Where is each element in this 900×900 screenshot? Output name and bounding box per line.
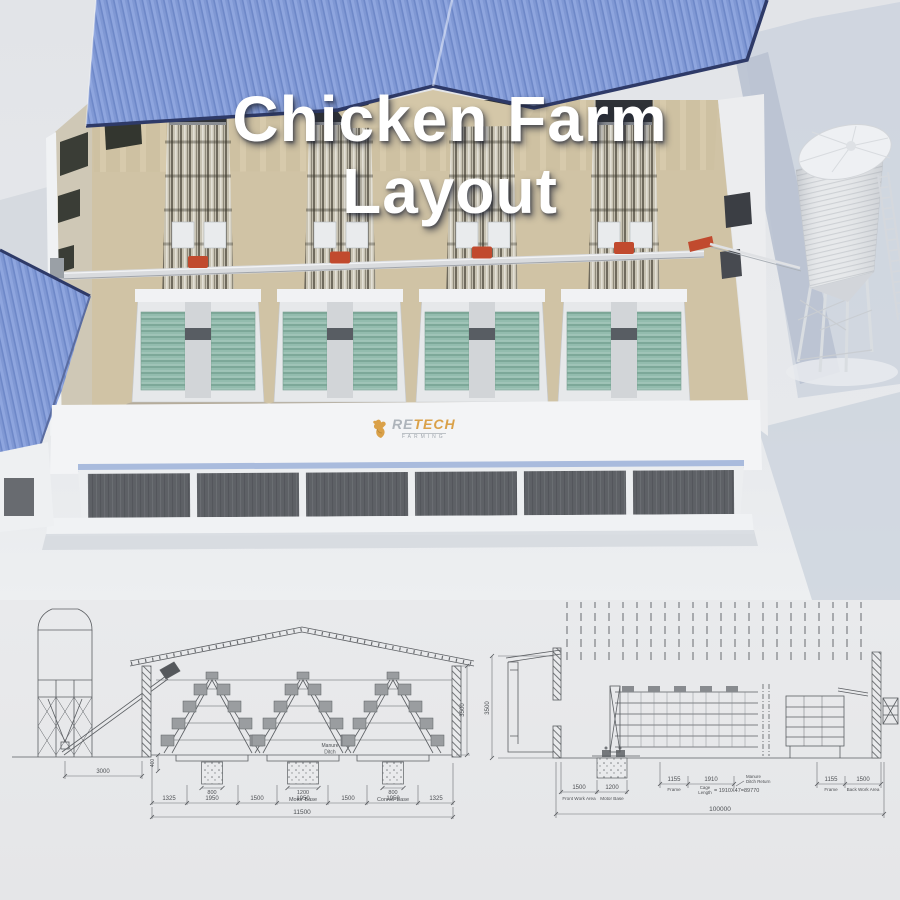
label-frame-right: Frame	[824, 787, 838, 792]
dim-span: 1950	[205, 796, 219, 802]
dim-total-length: 100000	[709, 806, 731, 813]
brand-logo: RETECH FARMING	[368, 417, 456, 440]
title-line-2: Layout	[0, 156, 900, 228]
drawings-svg: 3000 400 800 1200 800 Manure Ditch Motor…	[0, 600, 900, 900]
right-wall-door	[720, 249, 742, 279]
poster: Chicken Farm Layout RETECH FARMING	[0, 0, 900, 900]
cage-formula: = 1910X47=89770	[714, 788, 759, 794]
label-frame-left: Frame	[667, 787, 681, 792]
end-wall-drawing	[506, 648, 561, 758]
brand-subtitle: FARMING	[402, 433, 446, 440]
technical-drawings: 3000 400 800 1200 800 Manure Ditch Motor…	[0, 600, 900, 900]
house-shell-drawing	[130, 627, 474, 757]
render-scene: Chicken Farm Layout RETECH FARMING	[0, 0, 900, 600]
dim-span: 1500	[250, 796, 264, 802]
longitudinal-section-drawing: 3500 1500 1200 Front Work Area Motor Bas…	[485, 602, 898, 818]
dim-frame-right: 1155	[825, 777, 839, 783]
roof-purlins	[562, 602, 868, 660]
title-line-1: Chicken Farm	[0, 84, 900, 156]
cross-section-drawing: 3000 400 800 1200 800 Manure Ditch Motor…	[12, 609, 474, 819]
dim-total-width: 11500	[293, 809, 311, 816]
label-cage-2: Length	[698, 790, 712, 795]
label-front-work: Front Work Area	[562, 796, 596, 801]
rear-wall-fan-drawing	[872, 652, 898, 758]
dim-pit-depth: 400	[150, 759, 156, 768]
dim-back-work: 1500	[856, 777, 870, 783]
dim-front-work: 1500	[572, 785, 586, 791]
label-motor-base-r: Motor Base	[600, 796, 624, 801]
auger-motor	[188, 256, 208, 268]
auger-motor	[330, 252, 350, 264]
auger-motor	[614, 242, 634, 254]
dim-span: 1500	[341, 796, 355, 802]
aframe-cage	[161, 672, 263, 761]
dim-wall-height: 3500	[460, 703, 466, 717]
silo-drawing	[12, 609, 142, 757]
dim-span: 1325	[162, 796, 176, 802]
dim-wall-height-r: 3500	[485, 701, 491, 715]
dim-frame-left: 1155	[668, 777, 682, 783]
dim-span: 1950	[296, 796, 310, 802]
aframe-cage	[342, 672, 444, 761]
aframe-cage	[252, 672, 354, 761]
page-title: Chicken Farm Layout	[0, 84, 900, 227]
rooster-icon	[368, 418, 388, 440]
brand-right: TECH	[413, 416, 455, 432]
label-manure-ditch: Manure	[322, 743, 339, 749]
brand-name: RETECH	[392, 417, 456, 431]
brand-left: RE	[392, 416, 413, 432]
foundation-blocks	[202, 762, 404, 784]
label-back-work: Back Work Area	[847, 787, 880, 792]
dim-span: 1325	[429, 796, 443, 802]
dim-cage: 1910	[704, 777, 718, 783]
label-manure-return-2: Ditch Return	[746, 779, 771, 784]
dim-span: 1950	[386, 796, 400, 802]
cage-battery-drawing	[610, 684, 868, 758]
pit-drawing	[592, 747, 640, 779]
label-manure-ditch-2: Ditch	[324, 750, 336, 756]
auger-motor	[472, 247, 492, 259]
dim-motor-base: 1200	[605, 785, 619, 791]
annex-corner	[0, 442, 54, 532]
dim-silo-offset: 3000	[96, 769, 110, 775]
